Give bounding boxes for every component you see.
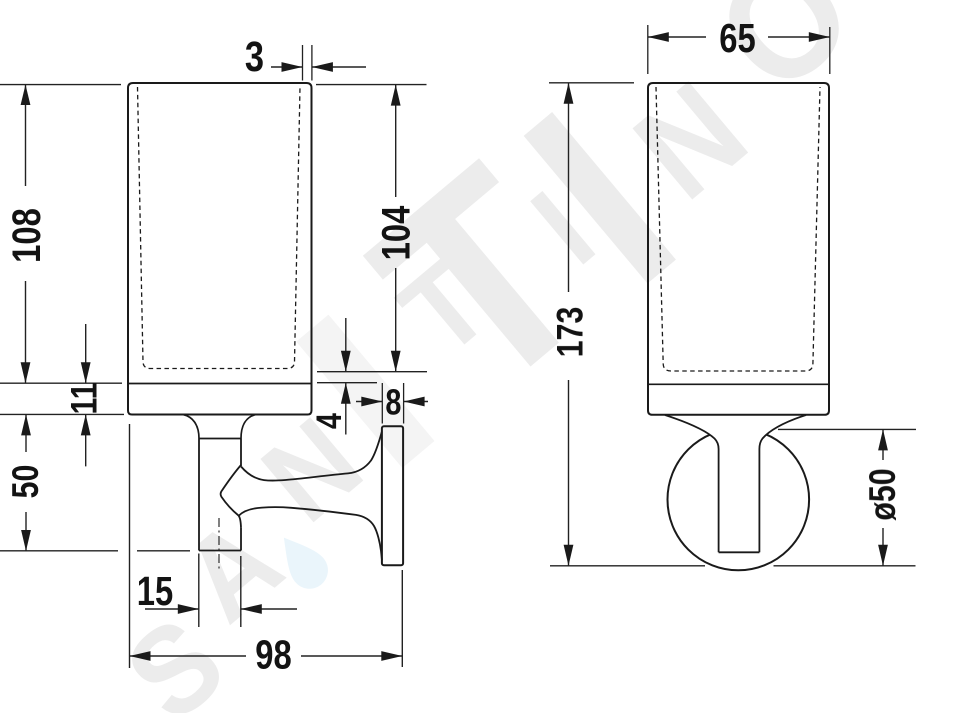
svg-text:11: 11 (64, 382, 106, 414)
svg-text:ø50: ø50 (862, 468, 904, 520)
svg-text:98: 98 (255, 631, 291, 677)
svg-text:8: 8 (385, 381, 401, 422)
svg-text:4: 4 (309, 413, 348, 429)
svg-text:173: 173 (550, 307, 592, 358)
svg-text:50: 50 (5, 465, 47, 499)
svg-text:104: 104 (374, 205, 419, 260)
svg-text:108: 108 (4, 208, 49, 263)
svg-text:65: 65 (719, 14, 755, 60)
svg-text:15: 15 (137, 567, 173, 613)
svg-text:3: 3 (245, 33, 264, 80)
